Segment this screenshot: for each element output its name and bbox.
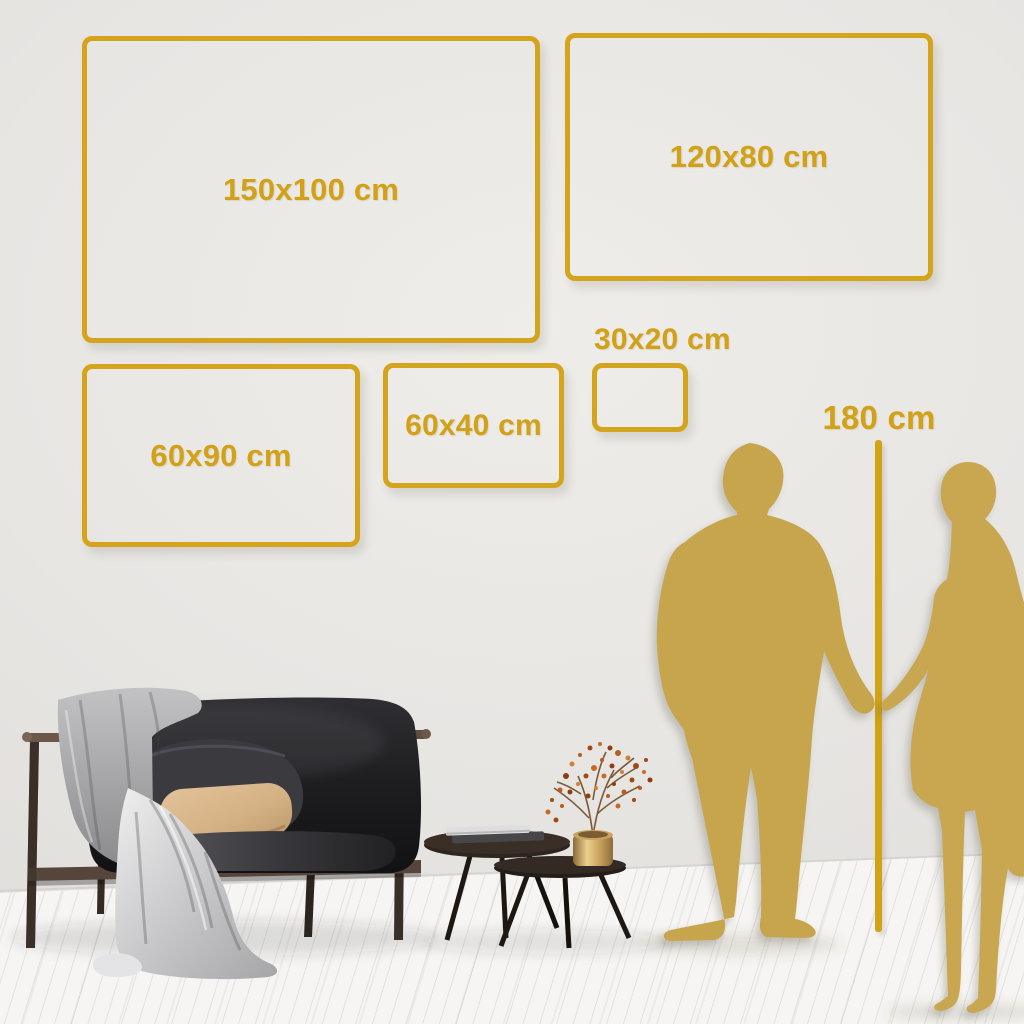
woman-silhouette xyxy=(881,462,1024,1013)
man-silhouette xyxy=(657,443,875,941)
books xyxy=(446,824,544,843)
size-guide-canvas: 150x100 cm 120x80 cm 60x90 cm 60x40 cm 3… xyxy=(0,0,1024,1024)
room-illustration xyxy=(0,0,1024,1024)
